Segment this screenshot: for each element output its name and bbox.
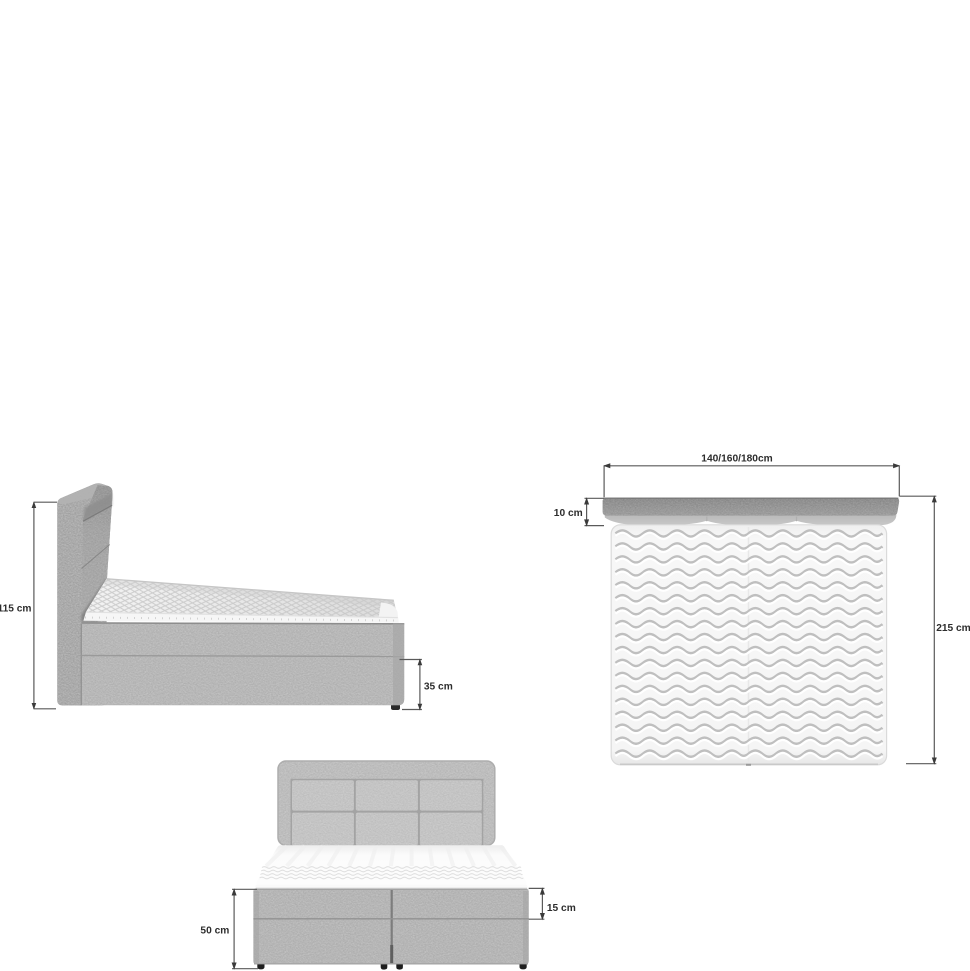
svg-text:10 cm: 10 cm <box>554 508 583 519</box>
svg-text:15 cm: 15 cm <box>547 903 576 914</box>
svg-text:50 cm: 50 cm <box>200 925 229 936</box>
svg-text:140/160/180cm: 140/160/180cm <box>701 454 772 465</box>
svg-text:115 cm: 115 cm <box>0 603 32 614</box>
svg-text:35 cm: 35 cm <box>424 681 453 692</box>
svg-text:215 cm: 215 cm <box>936 623 970 634</box>
